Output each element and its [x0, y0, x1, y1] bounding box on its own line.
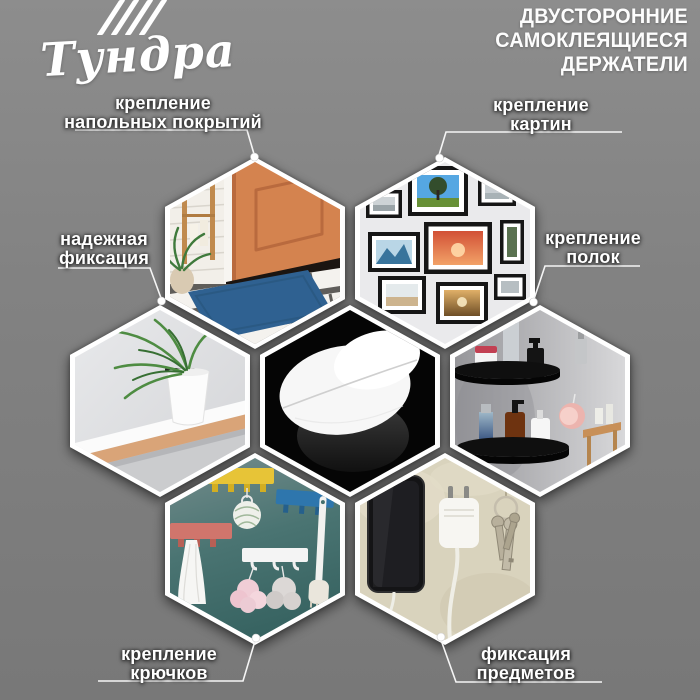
- callout-text: крепление: [23, 94, 303, 113]
- callout-objects: фиксация предметов: [406, 645, 646, 683]
- callout-text: фиксация: [406, 645, 646, 664]
- header-title-line: ДВУСТОРОННИЕ: [495, 5, 688, 29]
- callout-floor-coverings: крепление напольных покрытий: [23, 94, 303, 132]
- hex-phone-charger: [355, 453, 535, 645]
- leader-floor-coverings: [75, 130, 254, 154]
- brand-logo-text: Тундра: [27, 22, 250, 87]
- callout-text: полок: [503, 248, 683, 267]
- corner-shelf-top: [455, 361, 560, 385]
- leader-shelves: [534, 266, 640, 299]
- callout-hooks: крепление крючков: [49, 645, 289, 683]
- callout-text: крепление: [49, 645, 289, 664]
- phone-charger-photo: [360, 458, 530, 640]
- leader-secure-fixation: [58, 268, 161, 298]
- callout-text: предметов: [406, 664, 646, 683]
- callout-pictures: крепление картин: [411, 96, 671, 134]
- callout-text: напольных покрытий: [23, 113, 303, 132]
- leader-pictures: [439, 132, 622, 155]
- brand-logo: Тундра: [18, 0, 248, 100]
- callout-text: картин: [411, 115, 671, 134]
- header-title-line: ДЕРЖАТЕЛИ: [495, 53, 688, 77]
- hook-rails-photo: [170, 458, 340, 640]
- callout-text: крепление: [411, 96, 671, 115]
- hex-hook-rails: [165, 453, 345, 645]
- callout-text: крючков: [49, 664, 289, 683]
- callout-text: надежная: [14, 230, 194, 249]
- callout-text: крепление: [503, 229, 683, 248]
- callout-shelves: крепление полок: [503, 229, 683, 267]
- callout-secure-fixation: надежная фиксация: [14, 230, 194, 268]
- header-title-line: САМОКЛЕЯЩИЕСЯ: [495, 29, 688, 53]
- callout-text: фиксация: [14, 249, 194, 268]
- header-title: ДВУСТОРОННИЕ САМОКЛЕЯЩИЕСЯ ДЕРЖАТЕЛИ: [495, 5, 688, 77]
- product-infographic: Тундра ДВУСТОРОННИЕ САМОКЛЕЯЩИЕСЯ ДЕРЖАТ…: [0, 0, 700, 700]
